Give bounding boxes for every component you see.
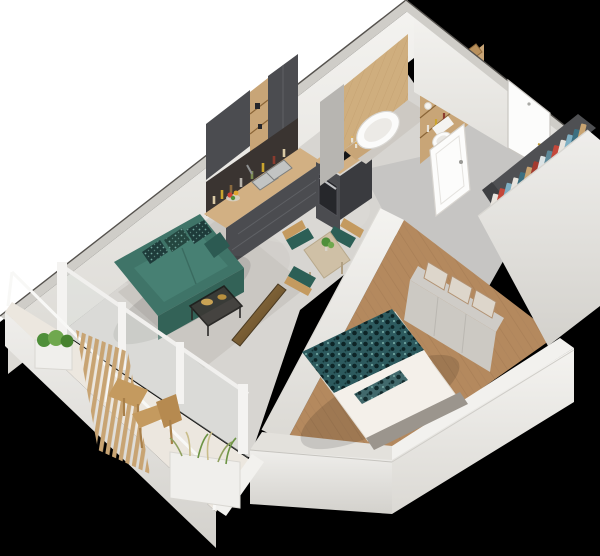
window-corner-post xyxy=(238,384,248,454)
window-mullion xyxy=(176,342,184,404)
candle xyxy=(355,144,357,148)
gold-tray xyxy=(217,294,226,300)
planter-box xyxy=(170,452,240,508)
bathroom-concrete-wall xyxy=(320,84,344,186)
fruit xyxy=(234,191,239,196)
bedroom-southwest-wall-face xyxy=(250,450,392,514)
floorplan-render xyxy=(0,0,600,556)
door-knob xyxy=(459,160,463,164)
candle-flame xyxy=(351,136,353,138)
vase xyxy=(325,246,327,251)
fruit xyxy=(231,196,235,200)
candle xyxy=(351,138,353,143)
candle-flame xyxy=(355,142,357,144)
rolled-towel xyxy=(425,103,432,110)
apartment-isometric-view xyxy=(0,0,600,556)
gold-tray xyxy=(201,299,213,306)
shelf-item xyxy=(258,124,262,129)
planter-shrub xyxy=(61,335,74,348)
shelf-item xyxy=(255,103,260,109)
table-plant xyxy=(328,242,334,248)
peephole xyxy=(527,102,530,105)
